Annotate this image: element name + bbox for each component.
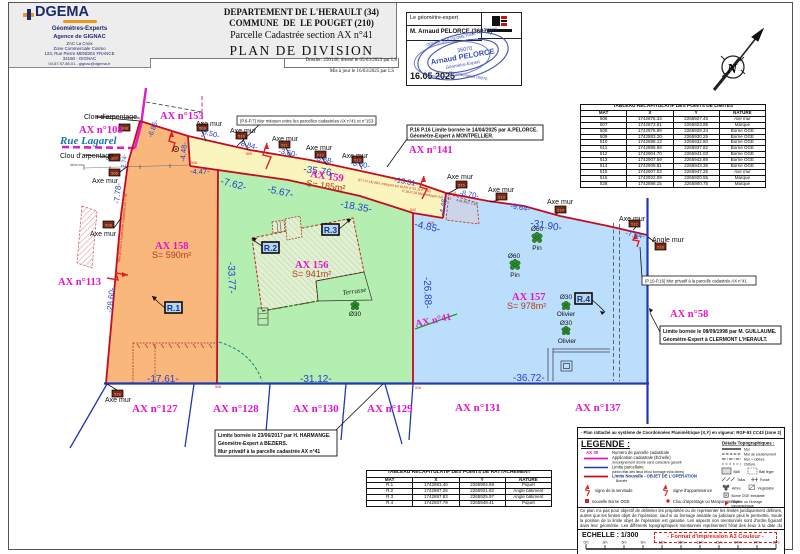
svg-text:Angle mur: Angle mur [652,237,685,244]
svg-text:Axe mur: Axe mur [230,128,257,135]
svg-text:Ø60: Ø60 [508,253,521,260]
svg-text:516: 516 [428,221,434,225]
svg-text:Géomètre-Expert à CLERMONT L'H: Géomètre-Expert à CLERMONT L'HERAULT. [663,337,768,343]
svg-text:signe d'appartenance: signe d'appartenance [673,488,713,493]
svg-text:Axe mur: Axe mur [105,397,132,404]
svg-text:528: 528 [114,392,121,397]
svg-text:Pin: Pin [532,245,542,252]
svg-text:Talus: Talus [737,478,745,482]
svg-text:508: 508 [215,385,221,389]
svg-text:AX n°153: AX n°153 [160,111,204,122]
svg-text:510: 510 [410,208,416,212]
svg-text:-33.77-: -33.77- [225,262,237,294]
svg-text:514: 514 [557,208,564,213]
svg-text:516: 516 [657,245,664,250]
svg-text:S= 590m²: S= 590m² [152,250,191,260]
svg-text:9m: 9m [641,541,646,545]
svg-text:Fossé: Fossé [760,478,770,482]
svg-text:AX n°129: AX n°129 [367,403,413,415]
svg-text:Pin: Pin [510,272,520,279]
svg-text:S= 978m²: S= 978m² [507,301,546,311]
svg-text:509: 509 [246,152,252,156]
svg-text:Clôture: Clôture [744,463,755,467]
svg-text:12m: 12m [659,541,666,545]
svg-text:-8.50-: -8.50- [199,126,221,140]
svg-text:Bornée: Bornée [616,479,627,483]
svg-text:Axe mur: Axe mur [272,136,299,143]
svg-text:R.4: R.4 [577,294,591,304]
svg-text:-31.12-: -31.12- [300,374,332,385]
svg-text:Ø30: Ø30 [349,311,362,318]
svg-text:0m: 0m [584,541,589,545]
svg-text:Géomètre-Expert à MONTPELLIER.: Géomètre-Expert à MONTPELLIER. [410,134,494,140]
svg-text:Limite bornée le 08/09/1998 pa: Limite bornée le 08/09/1998 par M. GUILL… [663,329,777,335]
svg-text:Mur privatif à la parcelle cad: Mur privatif à la parcelle cadastrée AX … [218,449,320,455]
svg-text:S= 941m²: S= 941m² [292,269,331,279]
svg-text:Arbre: Arbre [732,487,741,491]
svg-text:528: 528 [105,223,112,228]
svg-text:R.1: R.1 [167,303,181,313]
svg-text:AX n°113: AX n°113 [58,277,101,288]
svg-text:AX n°128: AX n°128 [213,403,259,415]
svg-text:(P.10-P.16) Mur privatif à la: (P.10-P.16) Mur privatif à la parcelle c… [645,279,748,284]
svg-text:Végétation: Végétation [758,487,775,491]
svg-text:AX n°141: AX n°141 [409,145,453,156]
svg-text:Olivier: Olivier [558,338,577,345]
svg-text:516: 516 [415,386,421,390]
svg-text:AX n°127: AX n°127 [132,403,178,415]
svg-text:AX 39: AX 39 [586,450,599,455]
svg-text:3m: 3m [603,541,608,545]
svg-text:-7.78-: -7.78- [112,182,123,204]
svg-text:506: 506 [111,171,118,176]
svg-text:Axe mur: Axe mur [306,145,333,152]
svg-text:vieux mur: vieux mur [70,163,85,167]
svg-text:30m: 30m [773,541,780,545]
svg-text:Limite Nouvelle - OBJET DE L'O: Limite Nouvelle - OBJET DE L'OPERATION [612,474,697,479]
svg-text:Borne OGE existante: Borne OGE existante [732,494,765,498]
svg-text:6m: 6m [622,541,627,545]
svg-text:Mur + clôture: Mur + clôture [744,458,765,462]
svg-text:Axe mur: Axe mur [619,216,646,223]
svg-text:-17.61-: -17.61- [147,374,179,385]
svg-text:18m: 18m [697,541,704,545]
svg-text:Clou d'arpentage: Clou d'arpentage [60,153,113,160]
svg-text:Bâti: Bâti [734,470,740,474]
svg-text:Axe mur: Axe mur [447,174,474,181]
svg-text:515: 515 [450,191,456,195]
svg-text:Ø30: Ø30 [560,294,573,301]
svg-text:Mur: Mur [744,448,751,452]
svg-text:Bâti léger: Bâti léger [759,470,775,474]
svg-text:R.3: R.3 [324,225,338,235]
svg-text:Détails Topographiques :: Détails Topographiques : [722,441,775,446]
svg-text:Mur de soutènement: Mur de soutènement [744,453,776,457]
svg-text:Axe mur: Axe mur [488,187,515,194]
svg-text:Olivier: Olivier [557,311,576,318]
svg-text:513: 513 [498,195,505,200]
svg-text:515: 515 [458,183,465,188]
svg-text:508: 508 [191,161,197,165]
svg-text:AX n°137: AX n°137 [575,402,621,414]
svg-text:Application cadastrale (Échell: Application cadastrale (Échelle) [612,455,671,460]
svg-text:(P.6-P.7) Mur mitoyen entre le: (P.6-P.7) Mur mitoyen entre les parcelle… [240,119,374,124]
svg-text:Limite bornée le 23/06/2017 pa: Limite bornée le 23/06/2017 par H. HARMA… [218,433,331,439]
svg-text:27m: 27m [754,541,761,545]
svg-text:Axe mur: Axe mur [90,231,117,238]
svg-text:Géomètre-Expert à BEZIERS.: Géomètre-Expert à BEZIERS. [218,441,288,447]
svg-text:AX n°131: AX n°131 [455,402,501,414]
svg-text:21m: 21m [716,541,723,545]
svg-text:R.2: R.2 [264,243,278,253]
svg-text:-26.88-: -26.88- [421,277,433,309]
svg-text:-36.72-: -36.72- [513,373,545,384]
svg-text:signe de la servitude: signe de la servitude [595,488,633,493]
svg-text:AX n°130: AX n°130 [293,403,339,415]
svg-text:Axe mur: Axe mur [547,199,574,206]
svg-text:Limite parcellaire: Limite parcellaire [612,465,644,470]
svg-text:Ø30: Ø30 [560,320,573,327]
svg-text:24m: 24m [735,541,742,545]
svg-text:AX n°58: AX n°58 [670,309,708,320]
svg-text:nouvelle Borne OGE: nouvelle Borne OGE [592,499,630,504]
svg-text:15m: 15m [678,541,685,545]
svg-text:-4.47-: -4.47- [190,167,210,176]
svg-text:Axe mur: Axe mur [196,121,223,128]
svg-text:Rue Lagarel: Rue Lagarel [59,135,117,147]
